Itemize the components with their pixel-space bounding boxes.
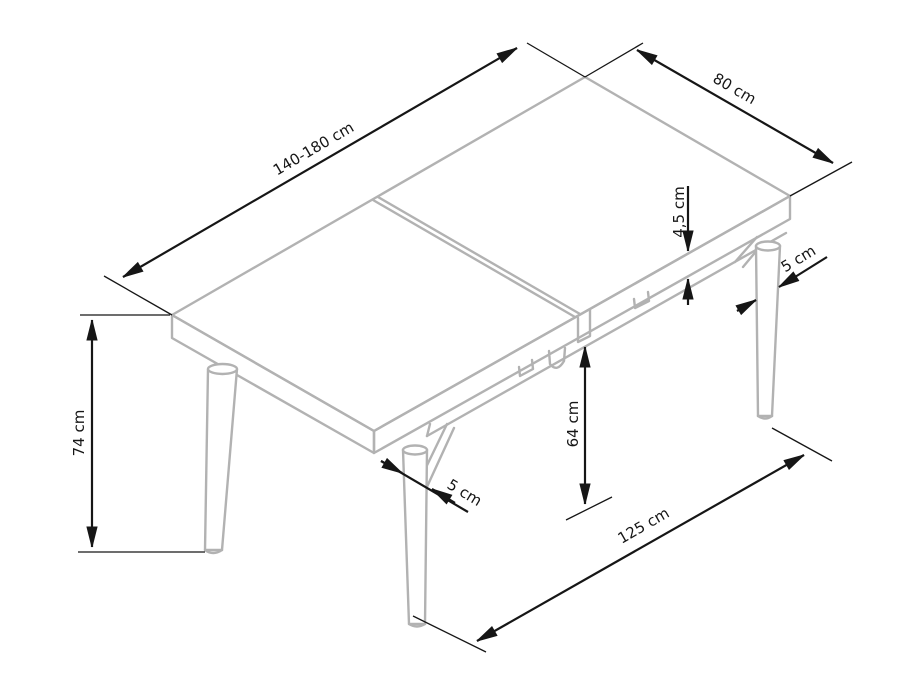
dimension-span [477,455,804,641]
ext-length-left [104,276,172,315]
extension-seam-line-1 [378,197,580,314]
dimension-span-label: 125 cm [615,504,673,548]
table-leg-front [403,446,427,627]
tabletop-right-edge [374,196,790,453]
ext-width-left [585,43,643,77]
table-leg-right [756,242,780,419]
tabletop-top-face [172,77,790,431]
table-outline [172,77,790,627]
ext-width-right [790,162,852,196]
ext-span-left [413,616,486,652]
right-leg-brace-1 [735,237,757,262]
dimension-back-leg-left [737,300,756,311]
dimension-clearance-label: 64 cm [564,401,582,448]
dimension-thickness-label: 4,5 cm [670,186,688,237]
tabletop-left-edge [172,315,374,453]
dimension-back-leg-label: 5 cm [778,241,819,276]
table-drawing-svg: 140-180 cm 80 cm 4,5 cm 5 cm 74 cm 64 cm… [0,0,922,691]
dimension-front-leg-left [381,461,402,473]
dimension-diagram: 140-180 cm 80 cm 4,5 cm 5 cm 74 cm 64 cm… [0,0,922,691]
dimension-front-leg-label: 5 cm [444,475,485,510]
table-leg-left [205,364,237,553]
ext-length-right [527,43,585,77]
ext-clearance-bottom [566,497,612,520]
dimension-width [637,50,833,163]
dimension-width-label: 80 cm [710,69,759,108]
dimension-height-label: 74 cm [70,410,88,457]
extension-seam-line-2 [373,200,575,317]
